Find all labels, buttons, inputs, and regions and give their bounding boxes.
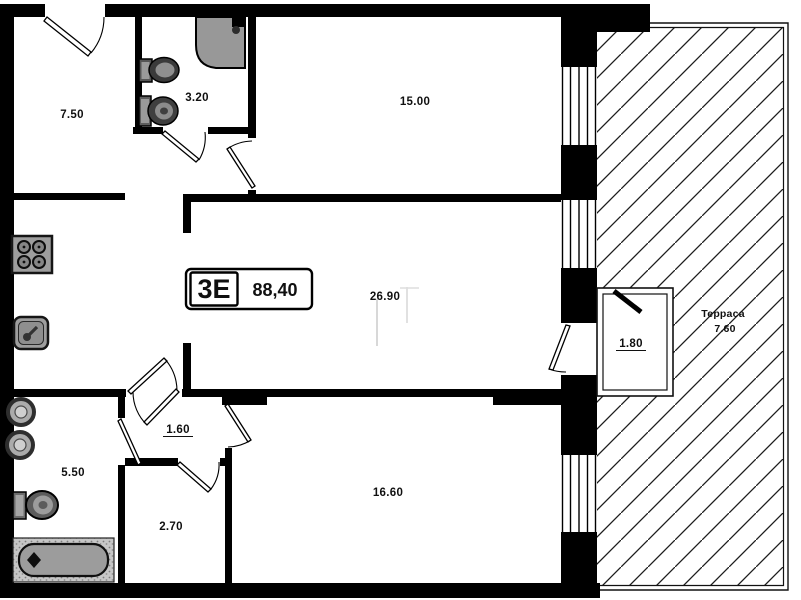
room-area-label-bedroom-top: 15.00 bbox=[400, 96, 430, 108]
toilet-icon bbox=[13, 491, 58, 519]
washbasin-icon bbox=[7, 432, 33, 458]
washbasin-icon bbox=[8, 399, 34, 425]
bedroom-top-door bbox=[227, 141, 255, 188]
room-area-label-entry-hall: 7.50 bbox=[60, 109, 84, 121]
wall-bath-bottom-right-a bbox=[118, 397, 125, 418]
terrace-area-label: 7.60 bbox=[714, 323, 735, 335]
kitchen-sink-icon bbox=[14, 317, 48, 349]
wall-top-main bbox=[105, 4, 561, 17]
floor-plan: 3Е 88,40 7.50 3.20 15.00 26.90 1.80 1.60… bbox=[0, 0, 801, 600]
room-area-label-closet: 2.70 bbox=[159, 521, 183, 533]
room-area-label-living-kitchen: 26.90 bbox=[370, 291, 400, 303]
wall-bath-bottom-right-b bbox=[118, 465, 125, 583]
living-hall-door-down bbox=[133, 389, 179, 425]
wall-hall-top-south bbox=[14, 193, 125, 200]
room-area-label-hall-bottom: 1.60 bbox=[166, 424, 190, 436]
bedroom-bottom-door bbox=[225, 404, 251, 447]
wall-bedroom-top-left-a bbox=[248, 17, 256, 138]
balcony-door bbox=[549, 325, 570, 372]
wall-left bbox=[0, 4, 14, 598]
sink-icon bbox=[139, 58, 179, 83]
wall-pier-5 bbox=[561, 532, 597, 583]
wall-hall-bottom-right-a bbox=[225, 397, 232, 403]
room-area-label-bedroom-bottom: 16.60 bbox=[373, 487, 403, 499]
wall-hall-bottom-right-b bbox=[225, 448, 232, 583]
wall-closet-top-b bbox=[220, 458, 225, 466]
window-living bbox=[561, 200, 597, 268]
closet-door bbox=[177, 462, 219, 492]
wall-pier-2 bbox=[561, 145, 597, 200]
room-area-label-bath-bottom: 5.50 bbox=[61, 467, 85, 479]
wall-pier-under-b bbox=[493, 397, 563, 405]
wall-bath-top-bottom-a bbox=[133, 127, 163, 134]
wall-stub-lower bbox=[183, 343, 191, 389]
wall-pier-4 bbox=[561, 375, 597, 455]
entry-door bbox=[44, 17, 104, 56]
toilet-icon bbox=[139, 96, 178, 126]
window-bedroom-bottom bbox=[561, 455, 597, 532]
wall-living-south-a bbox=[14, 389, 126, 397]
wall-pier-3 bbox=[561, 268, 597, 323]
wall-top-right-block bbox=[561, 4, 650, 32]
window-bedroom-top bbox=[561, 67, 597, 145]
unit-total-area: 88,40 bbox=[252, 280, 297, 300]
wall-stub-upper bbox=[183, 202, 191, 233]
doors bbox=[44, 17, 570, 492]
stove-icon bbox=[12, 236, 52, 273]
bath-top-door bbox=[162, 131, 205, 162]
unit-type-label: 3Е bbox=[197, 274, 230, 304]
walls bbox=[0, 4, 650, 598]
room-area-label-bath-top: 3.20 bbox=[185, 92, 209, 104]
wall-living-south-b bbox=[182, 389, 565, 397]
room-area-label-balcony: 1.80 bbox=[619, 338, 643, 350]
wall-corridor-south bbox=[183, 194, 565, 202]
wall-closet-top-a bbox=[125, 458, 178, 466]
terrace-name-label: Терраса bbox=[701, 308, 745, 320]
living-hall-door-up bbox=[128, 358, 177, 394]
wall-pier-1 bbox=[561, 32, 597, 67]
floor-plan-page: 3Е 88,40 7.50 3.20 15.00 26.90 1.80 1.60… bbox=[0, 0, 801, 600]
shower-icon bbox=[196, 17, 245, 68]
wall-bottom bbox=[0, 583, 600, 598]
unit-info-box: 3Е 88,40 bbox=[186, 269, 312, 309]
bathtub-icon bbox=[13, 538, 114, 582]
